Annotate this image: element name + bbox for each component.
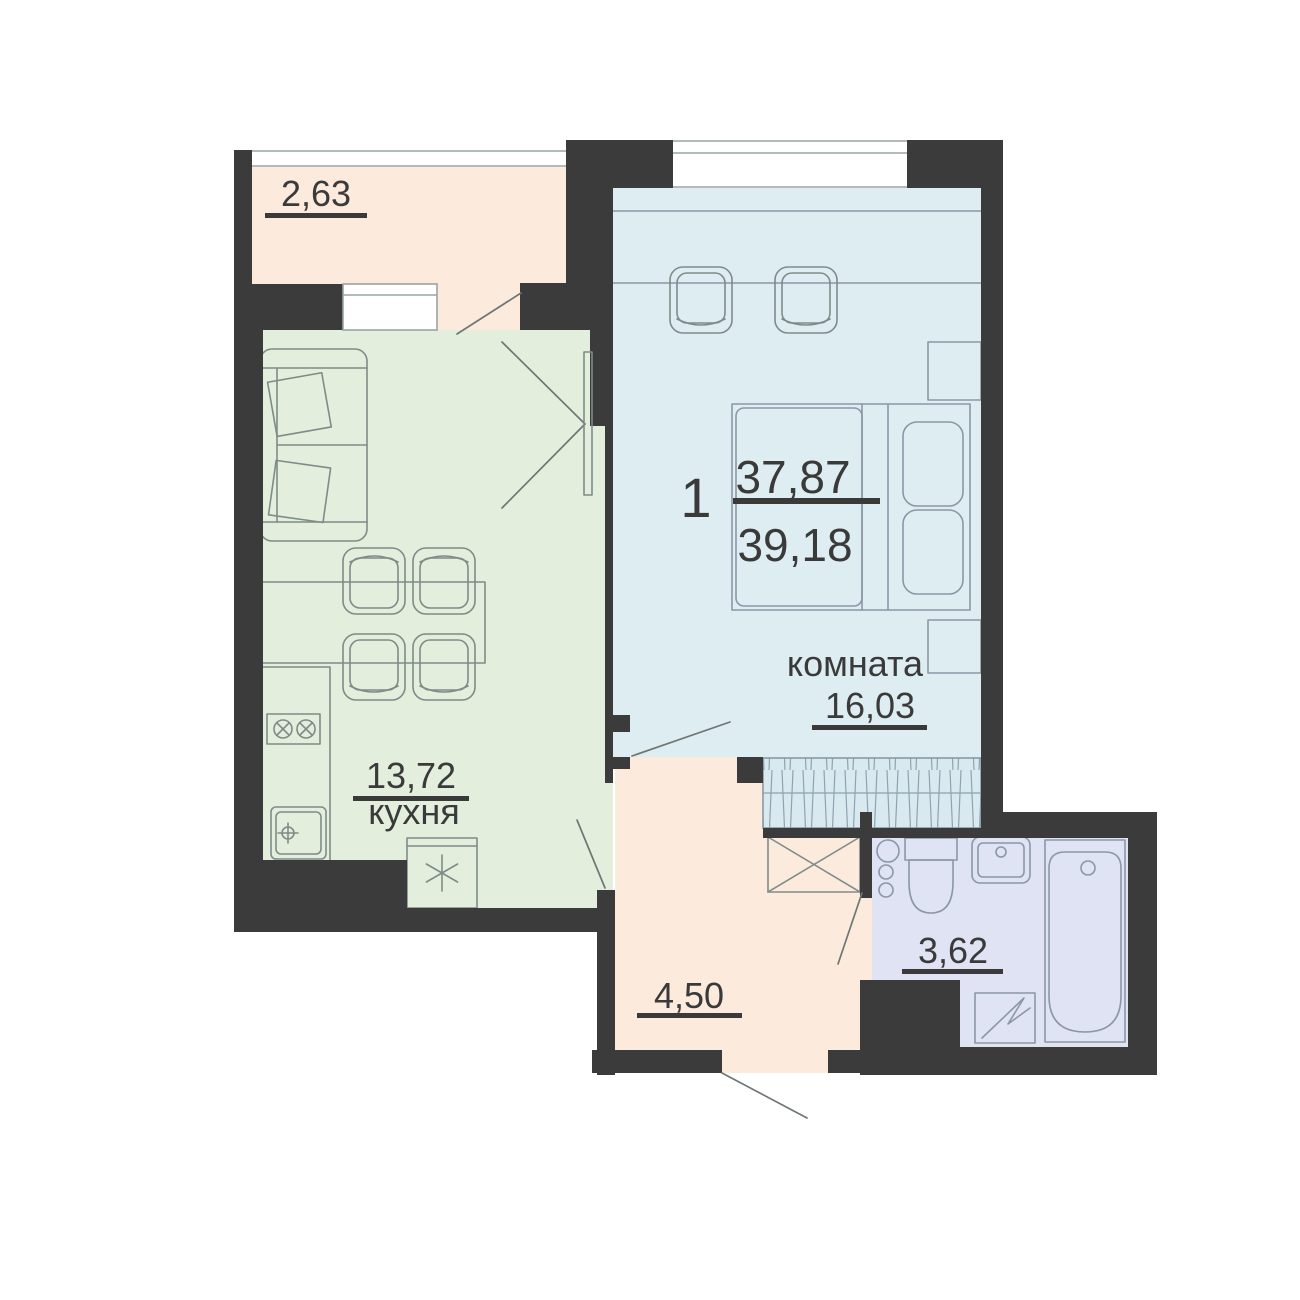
balcony-door-passage bbox=[437, 284, 520, 330]
entrance-door-gap bbox=[722, 1050, 828, 1073]
svg-text:3,62: 3,62 bbox=[918, 930, 988, 971]
fraction-line bbox=[733, 498, 880, 504]
room-window bbox=[673, 140, 907, 188]
total-area-label: 39,18 bbox=[737, 519, 852, 571]
kitchen-balcony-window bbox=[343, 284, 437, 330]
kitchen-label: 13,72 кухня bbox=[353, 755, 469, 832]
kitchen-name-label: кухня bbox=[368, 791, 460, 832]
room-name-label: комната bbox=[787, 643, 924, 684]
bathroom-door-gap bbox=[860, 898, 872, 980]
kitchen-area-label: 13,72 bbox=[366, 755, 456, 796]
floor-plan-page: 2,63 13,72 кухня комната 16,03 4,50 3,62… bbox=[0, 0, 1300, 1300]
living-area-label: 37,87 bbox=[735, 451, 850, 503]
bathroom-area-label: 3,62 bbox=[902, 930, 1003, 974]
svg-text:2,63: 2,63 bbox=[281, 173, 351, 214]
rooms-count-label: 1 bbox=[680, 466, 711, 529]
room-area-label: 16,03 bbox=[825, 685, 915, 726]
balcony-window bbox=[252, 150, 566, 167]
entrance-door-swing bbox=[722, 1073, 807, 1118]
svg-text:4,50: 4,50 bbox=[654, 975, 724, 1016]
floor-plan-svg: 2,63 13,72 кухня комната 16,03 4,50 3,62… bbox=[0, 0, 1300, 1300]
